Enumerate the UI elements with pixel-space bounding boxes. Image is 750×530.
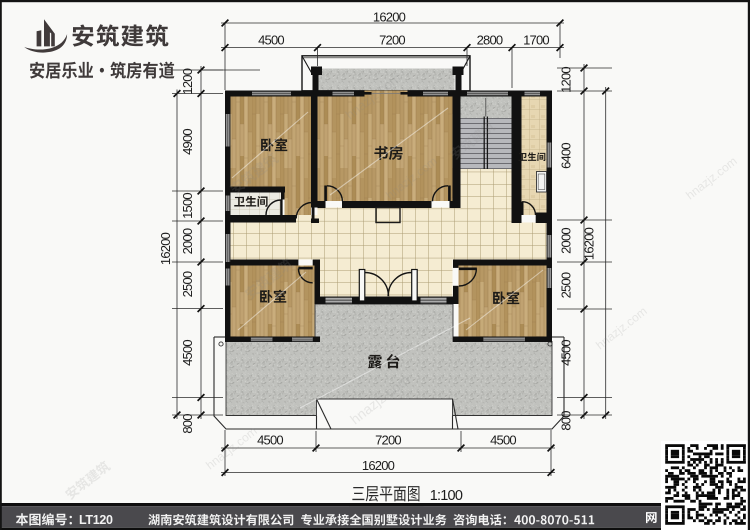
svg-text:2000: 2000 (559, 228, 574, 254)
svg-text:2500: 2500 (180, 271, 195, 297)
svg-text:LT120: LT120 (79, 513, 113, 527)
svg-text:4500: 4500 (559, 340, 574, 366)
svg-text:1:100: 1:100 (430, 488, 463, 504)
svg-text:4500: 4500 (490, 433, 516, 448)
svg-text:1700: 1700 (523, 33, 549, 48)
svg-text:2500: 2500 (559, 272, 574, 298)
svg-text:1200: 1200 (180, 68, 195, 94)
svg-text:16200: 16200 (158, 232, 173, 265)
svg-text:2000: 2000 (180, 228, 195, 254)
svg-text:800: 800 (180, 414, 195, 434)
svg-text:800: 800 (559, 411, 574, 431)
svg-text:16200: 16200 (362, 458, 395, 473)
svg-text:4500: 4500 (180, 340, 195, 366)
svg-text:7200: 7200 (375, 433, 401, 448)
svg-text:4900: 4900 (180, 129, 195, 155)
svg-text:1500: 1500 (180, 193, 195, 219)
svg-text:4500: 4500 (258, 33, 284, 48)
svg-text:4500: 4500 (257, 433, 283, 448)
svg-text:1200: 1200 (559, 67, 574, 93)
svg-text:6400: 6400 (559, 143, 574, 169)
svg-text:16200: 16200 (373, 10, 406, 25)
svg-text:2800: 2800 (477, 33, 503, 48)
svg-text:7200: 7200 (379, 33, 405, 48)
